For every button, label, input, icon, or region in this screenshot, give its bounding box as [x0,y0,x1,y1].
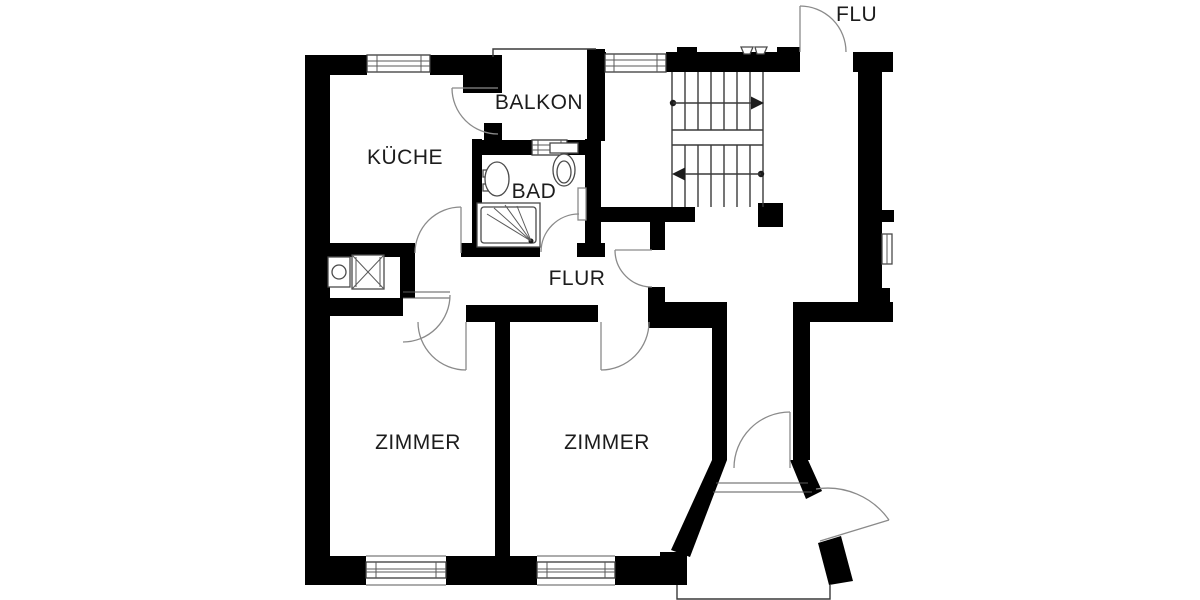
walls [305,47,894,585]
wall-stair-south [600,207,695,222]
wall-top-ne-corner [853,52,893,72]
wall-entrance-diag-block [818,536,853,585]
radiator-icon [882,234,892,264]
door-apartment-entry [615,250,652,287]
shower-icon [477,203,540,247]
wall-top-nub [677,47,697,55]
room-label-bad: BAD [512,180,557,203]
wall-apt-door-jamb-south [648,287,665,328]
door-corridor [734,412,790,468]
room-label-flur: FLUR [549,267,606,290]
window-stairwell [605,54,666,72]
staircase [670,72,764,207]
wall-right-nub-lower [878,288,890,302]
wall-corridor-east [793,322,810,460]
porch-outline [677,585,830,599]
room-label-zimmer-left: ZIMMER [375,431,461,454]
wall-right [858,72,882,302]
wall-bad-south-east [577,243,605,257]
wall-corridor-west [712,328,727,460]
stair-treads-upper [685,72,750,130]
room-label-balkon: BALKON [495,91,583,114]
wall-top-stair-stub [595,52,606,72]
stove-icon [352,255,384,289]
window-zimmer-right [537,556,615,585]
window-zimmer-left [366,556,446,585]
door-zimmer-right [601,322,649,370]
wall-between-zimmer [495,322,510,556]
stair-pillar [758,203,783,227]
floorplan-svg: KÜCHE BALKON BAD FLUR ZIMMER ZIMMER FLU [0,0,1200,600]
wall-bottom-mid [446,556,537,585]
wall-vestibule-sw-block [660,552,687,585]
wall-bottom-west [305,556,366,585]
wall-bad-east [585,139,601,253]
room-label-kueche: KÜCHE [367,146,443,169]
balkon-outline [493,49,596,57]
wall-top-mid [430,55,464,75]
wall-vestibule-diag-east [790,460,822,499]
wall-flur-south-west [305,298,403,316]
wall-left [305,55,330,585]
wall-niche-stub [400,243,415,298]
wall-apt-door-jamb-north [650,220,665,250]
room-label-stairhall: FLU [836,3,877,26]
door-zimmer-left [418,322,466,370]
wall-kueche-ne-corner [463,55,502,93]
thin-outlines [403,49,830,599]
wall-vestibule-diag-west [671,460,727,557]
wall-flur-south-mid [466,305,598,322]
window-kueche [367,55,430,72]
kitchenette-sink-icon [328,257,350,287]
wall-top-door-jamb [777,47,800,72]
room-label-zimmer-right: ZIMMER [564,431,650,454]
stair-treads-lower [685,145,750,207]
floorplan-page: KÜCHE BALKON BAD FLUR ZIMMER ZIMMER FLU [0,0,1200,600]
wall-right-nub-upper [882,210,894,222]
door-building-entrance [816,488,889,541]
wall-top-west [305,55,367,75]
wall-hall-south-cap [793,302,893,322]
washbasin-icon [483,162,509,196]
